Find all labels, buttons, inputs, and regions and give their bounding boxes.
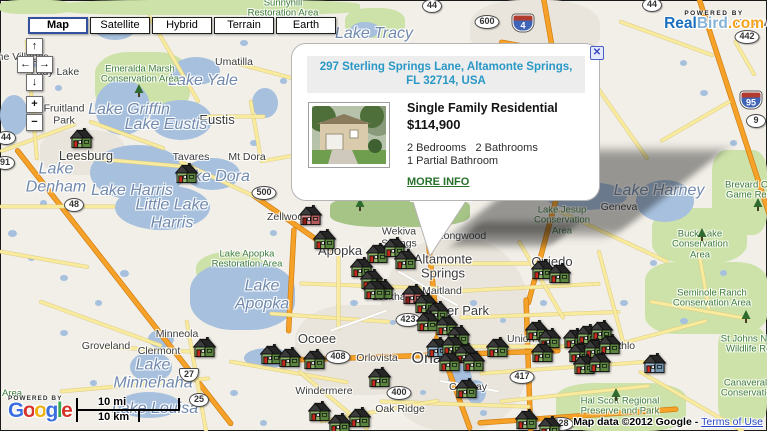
popup-tail (398, 192, 478, 258)
google-logo[interactable]: POWERED BY Google (8, 395, 71, 420)
pan-right-button[interactable]: → (36, 56, 53, 73)
house-marker[interactable] (299, 205, 322, 226)
house-marker[interactable] (462, 351, 485, 372)
scale-bar: 10 mi 10 km (76, 396, 182, 424)
route-shield-400: 400 (386, 386, 411, 400)
route-shield-600: 600 (474, 15, 499, 29)
realbird-com: .com (728, 15, 764, 32)
water-label: Little Lake Harris (136, 196, 209, 231)
route-shield-48: 48 (64, 198, 84, 212)
map-attribution: Map data ©2012 Google - Terms of Use (573, 416, 763, 428)
scale-tick-km (138, 410, 140, 422)
house-marker[interactable] (175, 163, 198, 184)
map-data-copyright: Map data ©2012 Google - (573, 416, 701, 428)
house-marker[interactable] (455, 378, 478, 399)
water-label: Lake Apopka (235, 277, 289, 312)
route-shield-408: 408 (325, 350, 350, 364)
house-marker[interactable] (193, 337, 216, 358)
map-type-button-map[interactable]: Map (28, 17, 88, 34)
route-shield-417: 417 (509, 370, 534, 384)
pan-down-button[interactable]: ↓ (26, 74, 43, 91)
water-label: Lake Tracy (335, 25, 413, 43)
route-shield-25: 25 (189, 393, 209, 407)
partial-bath-count: 1 Partial Bathroom (407, 155, 589, 167)
city-label: Groveland (82, 341, 130, 353)
scale-mi-label: 10 mi (98, 396, 126, 408)
property-details: Single Family Residential $114,900 2 Bed… (407, 101, 589, 190)
city-label: Fruitland Park (44, 103, 85, 126)
property-price: $114,900 (407, 117, 589, 132)
property-type: Single Family Residential (407, 101, 589, 115)
water-label: Lake Denham (26, 160, 86, 195)
city-label: Windermere (295, 386, 352, 398)
map-canvas[interactable]: The VillagesLady LakeUmatillaFruitland P… (0, 0, 767, 431)
house-marker[interactable] (348, 407, 371, 428)
house-marker[interactable] (531, 342, 554, 363)
house-marker[interactable] (548, 263, 571, 284)
close-icon[interactable]: ✕ (590, 46, 604, 60)
pine-tree-icon (741, 310, 751, 328)
pine-tree-icon (134, 84, 144, 102)
route-shield-44: 44 (642, 0, 662, 12)
pan-up-button[interactable]: ↑ (26, 38, 43, 55)
park-label: Lake Apopka Restoration Area (212, 250, 283, 271)
scale-km-label: 10 km (98, 411, 129, 423)
pine-tree-icon (697, 228, 707, 246)
house-marker[interactable] (328, 413, 351, 431)
route-shield-442: 442 (734, 30, 759, 44)
route-shield-44: 44 (0, 131, 16, 145)
map-type-button-satellite[interactable]: Satellite (90, 17, 150, 34)
park-label: St Johns National Wildlife Refuge (721, 335, 767, 356)
city-label: Orlovista (356, 353, 397, 365)
city-label: Ocoee (298, 332, 336, 346)
zoom-out-button[interactable]: − (26, 114, 43, 131)
house-marker[interactable] (278, 347, 301, 368)
house-marker[interactable] (486, 337, 509, 358)
google-letter: o (34, 399, 45, 422)
bed-bath-count: 2 Bedrooms 2 Bathrooms (407, 142, 589, 154)
property-address: 297 Sterling Springs Lane, Altamonte Spr… (307, 56, 585, 93)
route-shield-500: 500 (251, 186, 276, 200)
map-type-toolbar: MapSatelliteHybridTerrainEarth (28, 17, 336, 34)
google-letter: g (46, 399, 57, 422)
google-letter: e (61, 399, 71, 422)
house-marker[interactable] (438, 351, 461, 372)
more-info-link[interactable]: MORE INFO (407, 176, 469, 188)
property-photo[interactable] (308, 102, 390, 168)
pan-left-button[interactable]: ← (17, 56, 34, 73)
house-marker[interactable] (313, 229, 336, 250)
route-shield-44: 44 (422, 0, 442, 13)
route-shield-9: 9 (746, 114, 766, 128)
house-marker[interactable] (538, 416, 561, 431)
realbird-real: Real (664, 15, 697, 32)
house-marker[interactable] (368, 367, 391, 388)
google-letter: G (8, 399, 23, 422)
pine-tree-icon (611, 388, 621, 406)
pine-tree-icon (753, 198, 763, 216)
park-label: Seminole Ranch Conservation Area (673, 289, 751, 310)
realbird-logo[interactable]: POWERED BY RealBird.com (664, 10, 764, 30)
city-label: Oak Ridge (375, 404, 425, 416)
map-type-button-earth[interactable]: Earth (276, 17, 336, 34)
house-photo-illustration (312, 106, 386, 164)
scale-tick-mi (178, 398, 180, 410)
city-label: Mt Dora (228, 152, 265, 164)
house-marker[interactable] (515, 409, 538, 430)
house-marker[interactable] (70, 128, 93, 149)
realbird-bird: Bird (697, 15, 728, 32)
city-label: Umatilla (215, 57, 253, 69)
map-type-button-terrain[interactable]: Terrain (214, 17, 274, 34)
terms-of-use-link[interactable]: Terms of Use (701, 416, 763, 428)
zoom-in-button[interactable]: + (26, 96, 43, 113)
realbird-wordmark: RealBird.com (664, 17, 764, 30)
interstate-shield-4: 4 (513, 15, 534, 32)
map-type-button-hybrid[interactable]: Hybrid (152, 17, 212, 34)
google-wordmark: Google (8, 402, 71, 420)
park-label: Emeralda Marsh Conservation Area (101, 65, 179, 86)
house-marker[interactable] (643, 353, 666, 374)
city-label: Minneola (156, 329, 199, 341)
google-letter: o (23, 399, 34, 422)
property-info-window: 297 Sterling Springs Lane, Altamonte Spr… (291, 43, 600, 201)
house-marker[interactable] (303, 349, 326, 370)
house-marker[interactable] (363, 279, 386, 300)
park-label: Canaveral Marsh Conservation Area (721, 379, 767, 400)
route-shield-91: 91 (0, 156, 15, 170)
water-label: Lake Eustis (125, 116, 208, 134)
interstate-shield-95: 95 (741, 92, 762, 109)
house-marker[interactable] (588, 352, 611, 373)
